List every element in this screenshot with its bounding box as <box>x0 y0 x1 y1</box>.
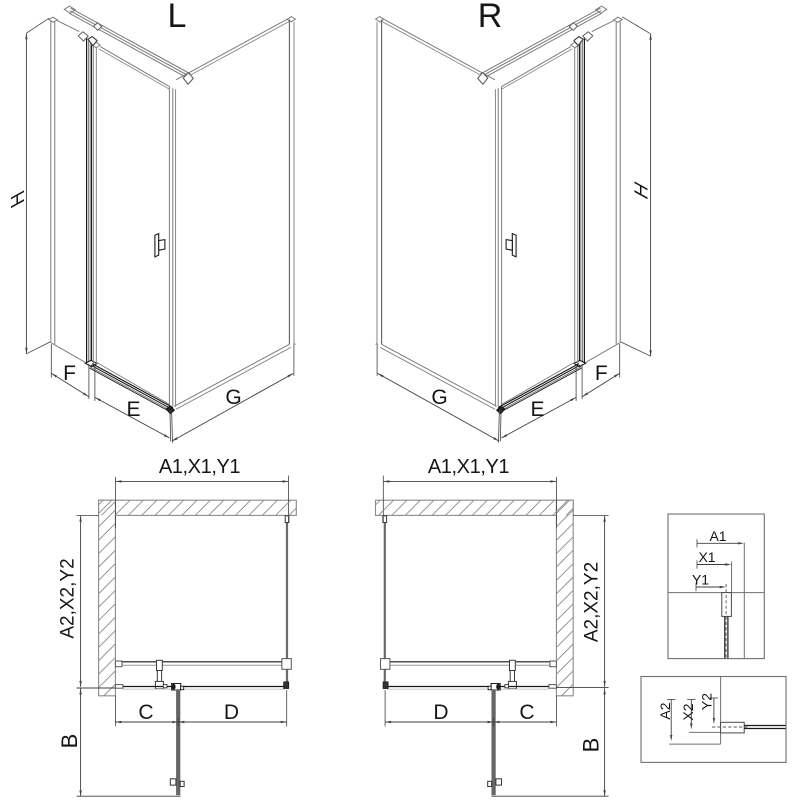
svg-text:C: C <box>138 701 153 724</box>
svg-text:A2,X2,Y2: A2,X2,Y2 <box>58 558 79 638</box>
svg-text:X1: X1 <box>698 549 715 565</box>
svg-text:A1,X1,Y1: A1,X1,Y1 <box>159 456 241 478</box>
svg-text:E: E <box>530 398 544 421</box>
svg-text:E: E <box>126 398 140 421</box>
svg-text:B: B <box>578 738 603 753</box>
svg-text:F: F <box>595 362 608 385</box>
svg-text:Y2: Y2 <box>699 693 715 710</box>
svg-text:G: G <box>225 386 241 409</box>
svg-text:L: L <box>168 0 187 35</box>
svg-text:A2: A2 <box>657 702 673 719</box>
svg-text:C: C <box>519 701 534 724</box>
svg-text:B: B <box>57 734 82 749</box>
svg-text:R: R <box>478 0 503 35</box>
svg-text:A1: A1 <box>709 528 726 544</box>
svg-text:F: F <box>63 362 76 385</box>
svg-text:H: H <box>632 178 652 203</box>
svg-text:H: H <box>8 186 28 211</box>
svg-text:A2,X2,Y2: A2,X2,Y2 <box>582 562 603 642</box>
svg-text:X2: X2 <box>680 703 696 720</box>
svg-text:A1,X1,Y1: A1,X1,Y1 <box>428 456 510 478</box>
svg-text:D: D <box>224 701 239 724</box>
svg-text:Y1: Y1 <box>692 572 709 588</box>
svg-text:G: G <box>431 386 447 409</box>
svg-text:D: D <box>433 701 448 724</box>
